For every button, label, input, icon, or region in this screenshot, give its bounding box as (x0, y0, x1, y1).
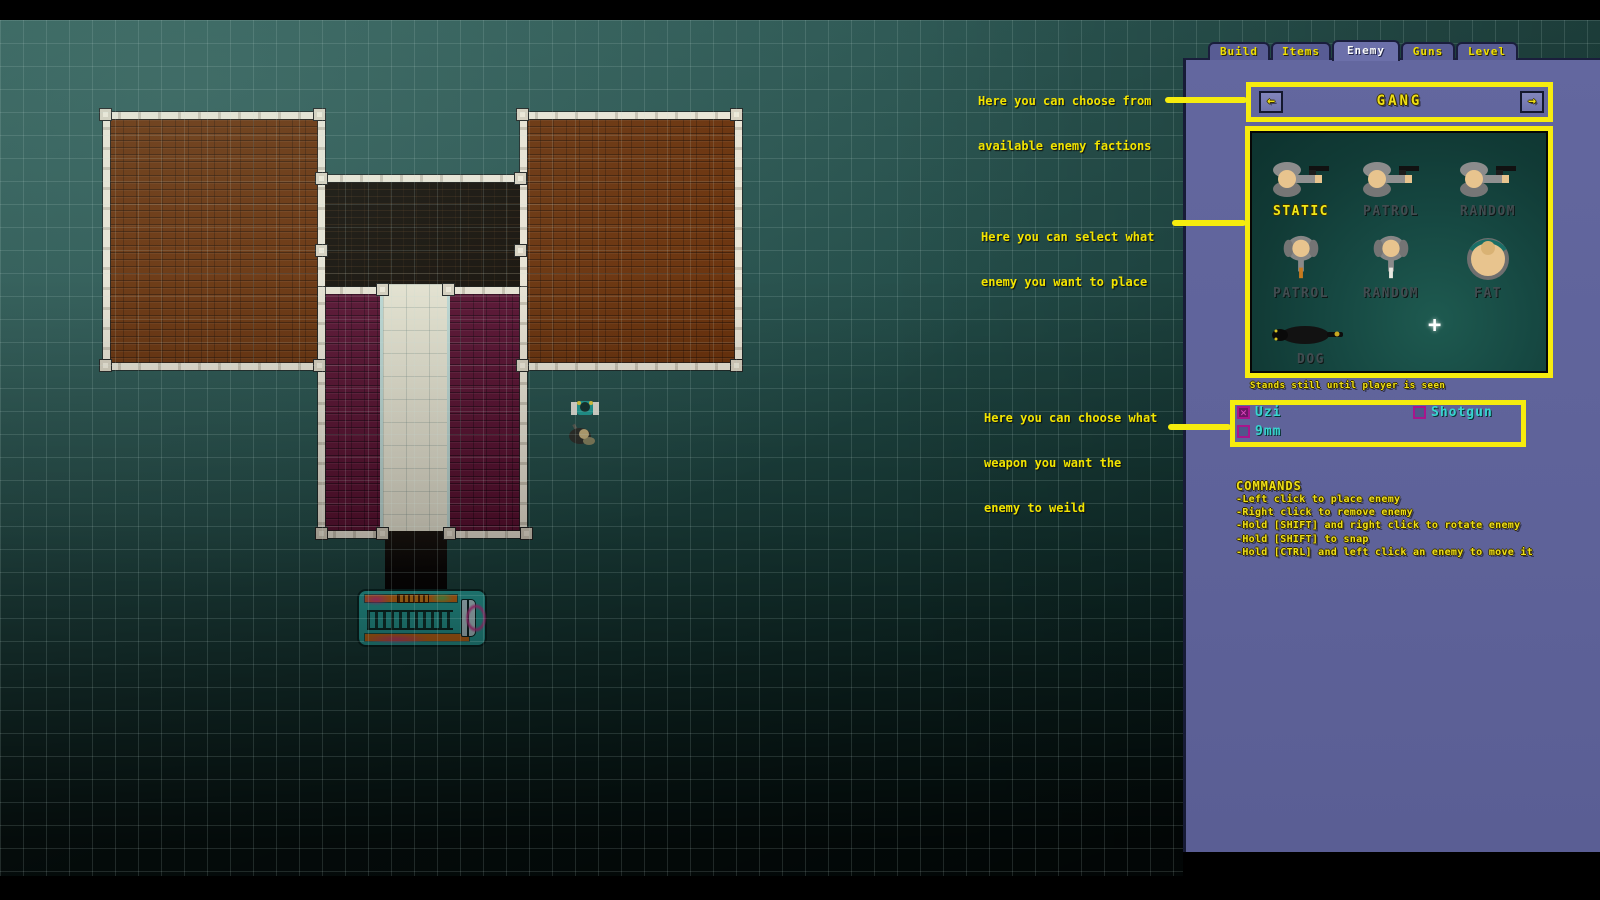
enemy-sprite-gunner-icon (1359, 159, 1423, 201)
enemy-option-label: PATROL (1363, 204, 1419, 219)
enemy-option-patrol-melee[interactable]: PATROL (1256, 219, 1346, 301)
enemy-option-label: RANDOM (1460, 204, 1516, 219)
wall-post (314, 109, 325, 120)
wall-post (377, 528, 388, 539)
bus-windshield (461, 599, 476, 637)
tab-guns[interactable]: Guns (1401, 42, 1455, 60)
player-character-sprite (570, 398, 600, 420)
wall (103, 112, 325, 119)
driveway-floor (385, 531, 447, 593)
checkbox-unchecked-icon[interactable] (1237, 425, 1250, 438)
enemy-option-fat[interactable]: FAT (1436, 219, 1540, 301)
weapon-checkbox-9mm[interactable]: 9mm (1237, 424, 1281, 439)
bus-roof-plate (397, 594, 429, 603)
wall (103, 112, 110, 370)
building-right-floor (527, 119, 735, 363)
enemy-option-label: STATIC (1273, 204, 1329, 219)
wall (325, 175, 520, 182)
annotation-line: Here you can choose from (978, 94, 1151, 109)
enemy-option-random[interactable]: RANDOM (1436, 139, 1540, 219)
tab-items[interactable]: Items (1271, 42, 1331, 60)
tab-level[interactable]: Level (1456, 42, 1518, 60)
bus-stripe-bottom (365, 634, 469, 641)
dark-room-floor (325, 182, 520, 287)
enemy-option-label: FAT (1474, 286, 1502, 301)
wall-post (517, 109, 528, 120)
wall (103, 363, 325, 370)
annotation-pointer-line (1168, 424, 1231, 430)
annotation-line: Here you can select what (981, 230, 1154, 245)
annotation-pointer-line (1172, 220, 1246, 226)
wall-post (515, 245, 526, 256)
tab-build[interactable]: Build (1208, 42, 1270, 60)
command-item: -Left click to place enemy (1236, 494, 1576, 505)
checkbox-checked-icon[interactable]: ✕ (1237, 406, 1250, 419)
wall-post (316, 173, 327, 184)
faction-name: GANG (1246, 93, 1553, 109)
wall (325, 287, 383, 294)
annotation-enemy-select: Here you can select what enemy you want … (981, 200, 1154, 320)
wall (520, 287, 527, 538)
tab-enemy[interactable]: Enemy (1332, 40, 1400, 61)
weapon-label: 9mm (1255, 424, 1281, 439)
annotation-pointer-line (1165, 97, 1247, 103)
enemy-selection-area[interactable]: STATIC PATROL RANDOM PATROL RANDOM FAT D… (1250, 131, 1548, 373)
annotation-line: enemy you want to place (981, 275, 1154, 290)
wall-post (517, 360, 528, 371)
wall (450, 531, 527, 538)
wall-post (316, 528, 327, 539)
wall-post (444, 528, 455, 539)
wall (735, 112, 742, 370)
wall-post (521, 528, 532, 539)
weapon-checkbox-uzi[interactable]: ✕ Uzi (1237, 405, 1281, 420)
annotation-line: enemy to weild (984, 501, 1157, 516)
annotation-factions: Here you can choose from available enemy… (978, 64, 1151, 184)
wall-post (100, 360, 111, 371)
enemy-option-patrol[interactable]: PATROL (1346, 139, 1436, 219)
purple-room-floor-left (325, 294, 383, 531)
enemy-sprite-fat-icon (1463, 235, 1513, 283)
enemy-option-random-melee[interactable]: RANDOM (1346, 219, 1436, 301)
wall (520, 363, 742, 370)
annotation-line: weapon you want the (984, 456, 1157, 471)
enemy-tooltip-text: Stands still until player is seen (1250, 381, 1445, 391)
wall-post (314, 360, 325, 371)
wall (318, 287, 325, 538)
weapon-checkbox-shotgun[interactable]: Shotgun (1413, 405, 1493, 420)
commands-title: COMMANDS (1236, 479, 1302, 493)
enemy-sprite-melee-icon (1369, 233, 1413, 283)
weapon-label: Shotgun (1431, 405, 1493, 420)
building-left-floor (110, 119, 318, 363)
checkbox-unchecked-icon[interactable] (1413, 406, 1426, 419)
top-letterbox (0, 0, 1600, 20)
weapon-label: Uzi (1255, 405, 1281, 420)
annotation-line: available enemy factions (978, 139, 1151, 154)
wall-post (316, 245, 327, 256)
wall-post (443, 284, 454, 295)
wall (447, 287, 520, 294)
wall-post (515, 173, 526, 184)
annotation-line: Here you can choose what (984, 411, 1157, 426)
purple-room-floor-right (447, 294, 520, 531)
bus-sprite (357, 589, 487, 647)
enemy-sprite-melee-icon (1279, 233, 1323, 283)
wall-post (731, 360, 742, 371)
wall (520, 112, 742, 119)
enemy-option-label: DOG (1297, 352, 1325, 367)
command-item: -Hold [SHIFT] to snap (1236, 534, 1576, 545)
annotation-weapons: Here you can choose what weapon you want… (984, 381, 1157, 546)
command-item: -Hold [SHIFT] and right click to rotate … (1236, 520, 1576, 531)
enemy-option-static[interactable]: STATIC (1256, 139, 1346, 219)
mouse-crosshair-cursor: + (1428, 316, 1441, 336)
enemy-option-dog[interactable]: DOG (1256, 303, 1366, 367)
bottom-letterbox (0, 876, 1600, 900)
carpet-floor (380, 284, 450, 531)
wall-post (731, 109, 742, 120)
command-item: -Hold [CTRL] and left click an enemy to … (1236, 547, 1576, 558)
enemy-sprite-gunner-icon (1456, 159, 1520, 201)
enemy-sprite-gunner-icon (1269, 159, 1333, 201)
level-editor-screen: Build Items Enemy Guns Level ← → GANG (0, 0, 1600, 900)
enemy-character-sprite (566, 423, 598, 447)
wall-post (100, 109, 111, 120)
wall (318, 531, 383, 538)
enemy-sprite-dog-icon (1271, 321, 1351, 349)
command-item: -Right click to remove enemy (1236, 507, 1576, 518)
enemy-option-label: RANDOM (1363, 286, 1419, 301)
wall-post (377, 284, 388, 295)
bus-roof-ladder (367, 610, 453, 630)
enemy-option-label: PATROL (1273, 286, 1329, 301)
